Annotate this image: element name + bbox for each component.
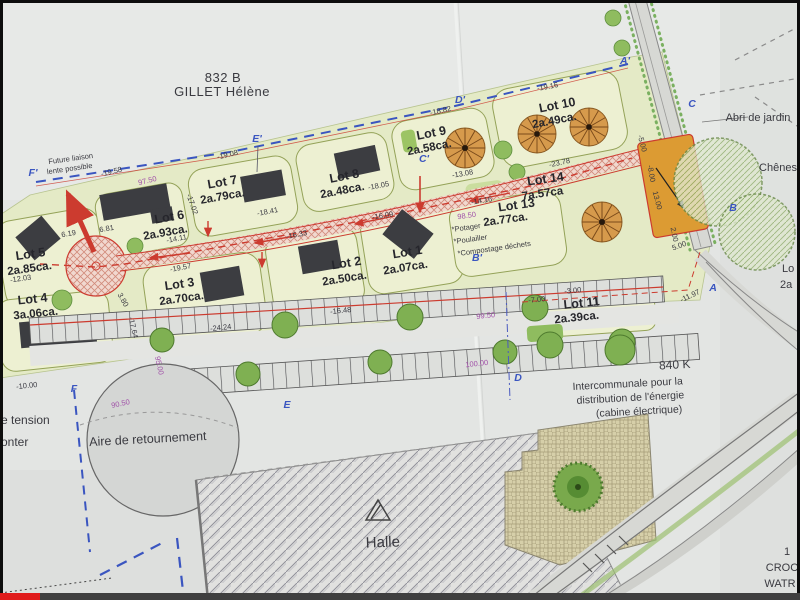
boundary-marker: A: [708, 282, 717, 294]
boundary-marker: F: [71, 383, 78, 395]
right-fragment: Lo: [782, 263, 794, 275]
video-left-border: [0, 0, 3, 600]
corner-fragment: WATR: [764, 578, 795, 590]
boundary-marker: B': [472, 252, 483, 264]
site-plan-svg: 832 B GILLET Hélène Future liaison lente…: [0, 0, 800, 600]
boundary-marker: C': [419, 153, 430, 165]
boundary-marker: A': [619, 55, 631, 67]
plaza-tree-icon: [554, 463, 602, 511]
large-tree-icon: [582, 202, 622, 242]
video-frame: 832 B GILLET Hélène Future liaison lente…: [0, 0, 800, 600]
boundary-marker: D: [514, 372, 522, 384]
boundary-marker: E': [252, 133, 262, 145]
energy-ref: 840 K: [659, 357, 691, 373]
abri-de-jardin-label: Abri de jardin: [726, 112, 791, 124]
video-progress-fill: [0, 593, 40, 600]
chenes-label: Chênes: [759, 162, 797, 174]
corner-fragment: 1: [784, 546, 790, 558]
video-seek-bar[interactable]: [0, 593, 800, 600]
boundary-marker: C: [688, 98, 696, 110]
halle-label: Halle: [365, 533, 400, 551]
measurement-label: -3.00: [564, 285, 582, 296]
tree-icon: [605, 335, 635, 365]
corner-fragment: CROC: [766, 562, 798, 574]
tree-icon: [605, 10, 621, 26]
tension-fragment: onter: [1, 435, 28, 449]
tree-icon: [494, 141, 512, 159]
boundary-marker: D': [455, 94, 466, 106]
parcel-id: 832 B: [205, 70, 241, 85]
measurement-label: -7.00: [528, 294, 546, 305]
boundary-marker: F': [29, 167, 38, 179]
tension-fragment: e tension: [1, 413, 50, 427]
turnaround-circle: [66, 236, 126, 296]
right-fragment: 2a: [780, 279, 793, 291]
boundary-marker: E: [283, 399, 291, 411]
parcel-owner: GILLET Hélène: [174, 84, 270, 99]
tree-icon: [127, 238, 143, 254]
video-top-border: [0, 0, 800, 3]
boundary-marker: B: [729, 202, 737, 214]
tree-icon: [614, 40, 630, 56]
tree-icon: [537, 332, 563, 358]
